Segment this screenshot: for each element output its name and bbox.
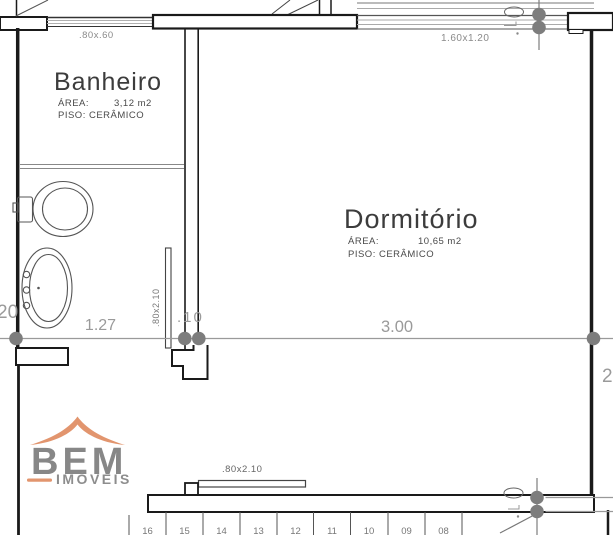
banheiro-window [47, 18, 153, 27]
bottom-wall [148, 495, 594, 512]
logo-text-imoveis: IMÓVEIS [56, 471, 132, 487]
shower-divider [20, 165, 184, 169]
banheiro-area-value: 3,12 m2 [114, 99, 152, 109]
stair-step-number: 11 [314, 526, 351, 535]
stair-step-number: 09 [388, 526, 425, 535]
dimension-marker [587, 332, 601, 346]
banheiro-door-label: .80x2.10 [152, 288, 161, 327]
dimension-wall-thickness: .10 [177, 310, 204, 325]
dimension-marker [178, 332, 192, 346]
left-door-jamb [16, 348, 68, 365]
stair-step-number: 08 [425, 526, 462, 535]
hall-door-stop [185, 483, 198, 495]
stair-step-number: 16 [129, 526, 166, 535]
hall-door-leaf [199, 481, 306, 488]
hall-door-label: .80x2.10 [222, 465, 262, 475]
stair-step-number: 13 [240, 526, 277, 535]
top-left-wall [0, 0, 48, 30]
dimension-right-partial: 2 [602, 367, 613, 386]
dimension-left-partial: 20 [0, 303, 18, 322]
dormitorio-window [357, 3, 594, 29]
dormitorio-room-title: Dormitório [344, 206, 479, 233]
sink [22, 248, 72, 328]
banheiro-area-label: ÁREA: [58, 99, 89, 109]
dimension-marker [192, 332, 206, 346]
dimension-banheiro-width: 1.27 [78, 318, 123, 334]
stair-step-number: 10 [351, 526, 388, 535]
stair-step-number: 14 [203, 526, 240, 535]
dormitorio-floor-label: PISO: CERÂMICO [348, 250, 434, 260]
dormitorio-area-value: 10,65 m2 [418, 237, 462, 247]
stair-step-number: 15 [166, 526, 203, 535]
banheiro-window-label: .80x.60 [79, 31, 114, 41]
dormitorio-area-label: ÁREA: [348, 237, 379, 247]
banheiro-room-title: Banheiro [54, 70, 162, 95]
dormitorio-window-label: 1.60x1.20 [441, 34, 489, 44]
banheiro-floor-label: PISO: CERÂMICO [58, 111, 144, 121]
banheiro-door-leaf [166, 248, 172, 348]
floorplan-page: Banheiro ÁREA: 3,12 m2 PISO: CERÂMICO Do… [0, 0, 613, 535]
dimension-dormitorio-width: 3.00 [373, 319, 421, 336]
top-middle-wall [153, 0, 357, 29]
toilet [13, 182, 93, 237]
stair-step-number: 12 [277, 526, 314, 535]
banheiro-dormitorio-wall [185, 28, 198, 350]
middle-door-jamb [172, 345, 208, 379]
dimension-marker [9, 332, 23, 346]
